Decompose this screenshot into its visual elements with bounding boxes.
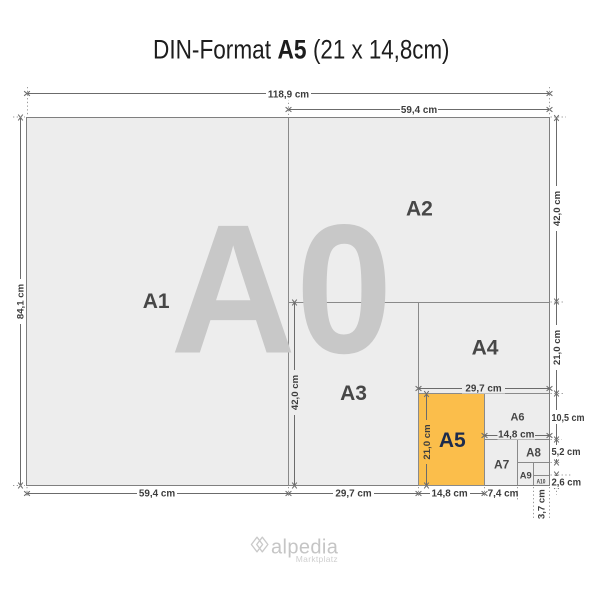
svg-text:A10: A10 [537, 479, 546, 485]
svg-text:42,0 cm: 42,0 cm [290, 375, 301, 410]
svg-text:A7: A7 [494, 458, 510, 472]
svg-text:A2: A2 [406, 198, 433, 221]
svg-text:118,9 cm: 118,9 cm [268, 89, 309, 100]
svg-text:A8: A8 [526, 448, 541, 460]
svg-text:2,6 cm: 2,6 cm [552, 478, 582, 489]
svg-text:29,7 cm: 29,7 cm [335, 488, 371, 499]
svg-text:42,0 cm: 42,0 cm [552, 191, 563, 226]
svg-text:(21 x 14,8cm): (21 x 14,8cm) [313, 35, 450, 65]
svg-text:21,0 cm: 21,0 cm [422, 424, 433, 459]
svg-text:10,5 cm: 10,5 cm [552, 413, 585, 424]
svg-text:DIN-Format: DIN-Format [153, 35, 271, 65]
svg-text:3,7 cm: 3,7 cm [536, 489, 547, 519]
svg-text:A4: A4 [472, 337, 499, 360]
svg-text:A3: A3 [340, 382, 367, 405]
svg-text:59,4 cm: 59,4 cm [401, 105, 437, 116]
svg-text:59,4 cm: 59,4 cm [139, 488, 175, 499]
svg-text:A5: A5 [439, 429, 466, 452]
svg-text:84,1 cm: 84,1 cm [15, 284, 26, 319]
svg-text:A1: A1 [143, 290, 170, 313]
svg-text:Marktplatz: Marktplatz [296, 554, 338, 564]
svg-text:7,4 cm: 7,4 cm [488, 488, 519, 499]
svg-text:21,0 cm: 21,0 cm [552, 330, 563, 365]
svg-text:29,7 cm: 29,7 cm [465, 384, 501, 395]
svg-text:14,8 cm: 14,8 cm [431, 488, 467, 499]
svg-text:A0: A0 [171, 186, 393, 392]
svg-text:5,2 cm: 5,2 cm [552, 447, 581, 458]
svg-text:A5: A5 [278, 35, 307, 65]
svg-text:A9: A9 [520, 470, 532, 481]
svg-text:A6: A6 [510, 412, 524, 424]
svg-text:14,8 cm: 14,8 cm [498, 430, 534, 441]
